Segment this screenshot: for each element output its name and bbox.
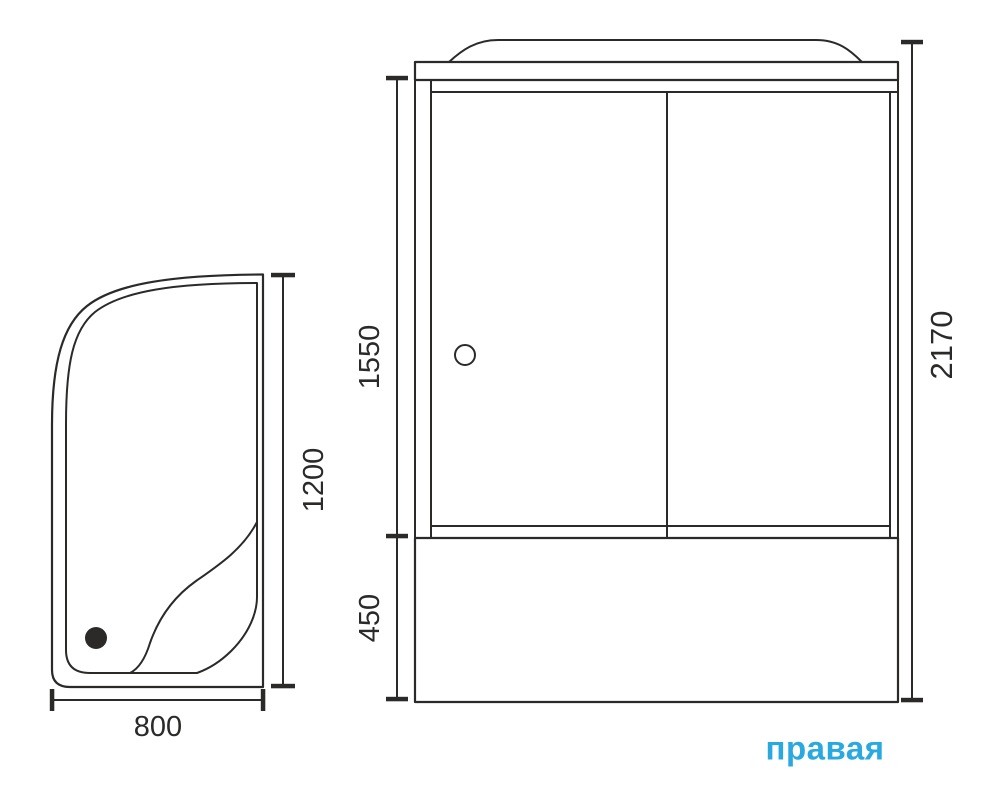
depth-dimension-label: 1200 <box>298 448 330 513</box>
width-dimension-label: 800 <box>134 711 182 743</box>
top-frame-bar <box>415 62 898 80</box>
roof-dome <box>449 40 862 62</box>
tub-apron-panel <box>415 538 898 702</box>
shower-cabin-dimension-drawing: 1200 800 <box>0 0 1000 800</box>
depth-dimension-tick-bottom <box>271 684 295 689</box>
upper-door-rail <box>431 80 898 92</box>
width-dimension-tick-right <box>261 689 266 711</box>
cabin-front-view: 1550 450 2170 <box>354 40 959 703</box>
door-handle <box>455 345 475 365</box>
left-frame-column <box>415 80 431 538</box>
total-height-dimension: 2170 <box>901 40 959 703</box>
width-dimension: 800 <box>50 689 265 743</box>
width-dimension-tick-left <box>50 689 55 711</box>
lower-door-rail <box>431 526 890 538</box>
total-height-label: 2170 <box>924 311 959 380</box>
right-frame-column <box>890 92 898 538</box>
tray-inner-contour <box>66 283 257 673</box>
depth-dimension: 1200 <box>271 273 330 689</box>
tub-section-label: 450 <box>354 594 386 642</box>
total-height-tick-bottom <box>901 698 923 703</box>
depth-dimension-tick-top <box>271 273 295 278</box>
orientation-label: правая <box>766 730 885 767</box>
total-height-tick-top <box>901 40 923 45</box>
glass-section-label: 1550 <box>354 325 386 390</box>
tray-top-view: 1200 800 <box>50 273 330 743</box>
left-dimension-tick-bottom <box>386 697 408 702</box>
drain-hole <box>85 627 107 649</box>
left-dimension-tick-top <box>386 76 408 81</box>
tray-seat-curve <box>130 522 257 673</box>
technical-drawing-page: 1200 800 <box>0 0 1000 800</box>
left-dimension-tick-middle <box>386 534 408 539</box>
left-dimension-chain: 1550 450 <box>354 76 408 702</box>
